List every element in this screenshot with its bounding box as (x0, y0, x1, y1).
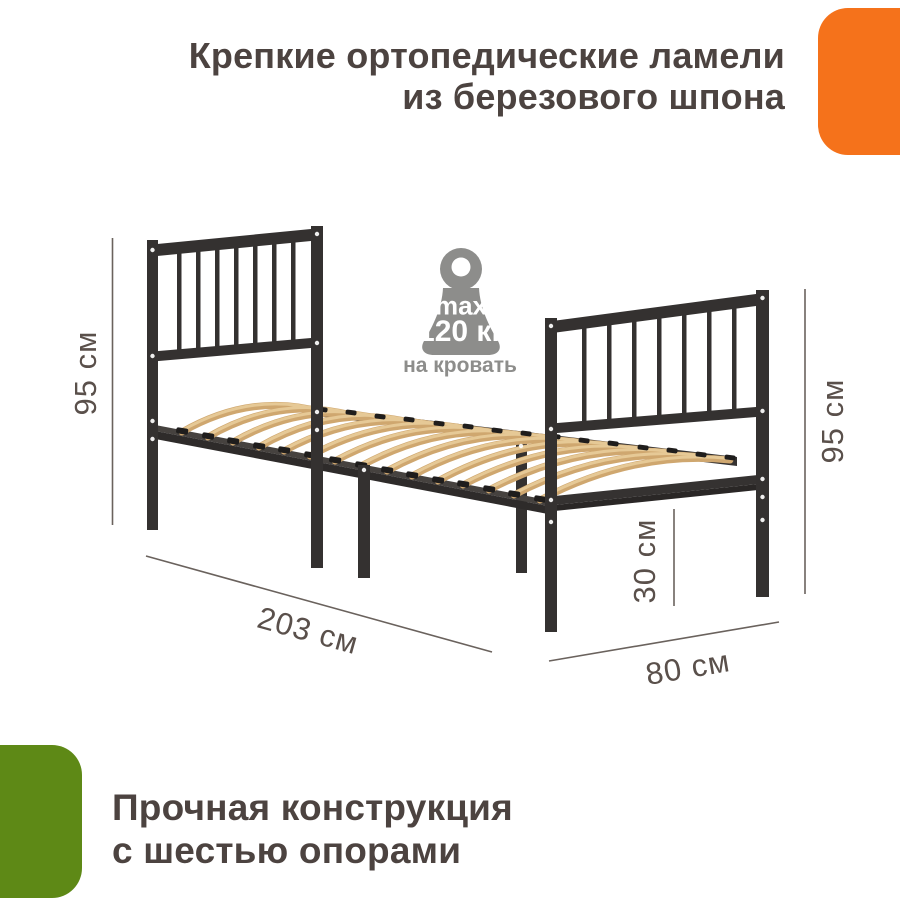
weight-value: 120 кг (418, 315, 504, 349)
bottom-title-line1: Прочная конструкция (112, 787, 513, 830)
bottom-title-line2: с шестью опорами (112, 830, 513, 873)
product-infographic: { "top_banner": { "line1": "Крепкие орто… (0, 0, 900, 900)
bottom-title: Прочная конструкция с шестью опорами (112, 787, 513, 873)
headboard-bottom-rail (147, 338, 311, 362)
footboard-bottom-rail (545, 407, 756, 434)
top-title-line1: Крепкие ортопедические ламели (189, 36, 785, 77)
top-title: Крепкие ортопедические ламели из березов… (189, 36, 785, 117)
bed-illustration (0, 0, 900, 900)
weight-icon-handle-hole (452, 258, 471, 277)
headboard-bars (177, 239, 296, 358)
footboard-near-post (545, 318, 557, 632)
top-title-line2: из березового шпона (189, 77, 785, 118)
green-accent-shape (0, 745, 82, 898)
footboard-far-post (756, 290, 769, 597)
dimension-label-footboard-height: 95 см (815, 379, 851, 464)
headboard-top-rail (147, 229, 311, 257)
weight-caption: на кровать (403, 354, 517, 378)
middle-near-leg (358, 465, 370, 578)
headboard-near-post (147, 240, 158, 530)
dimension-label-headboard-height: 95 см (68, 331, 104, 416)
footboard-top-rail (545, 294, 756, 334)
headboard-far-post (311, 226, 323, 568)
dimension-label-frame-clearance: 30 см (627, 519, 663, 604)
orange-accent-shape (818, 8, 900, 155)
headboard (147, 226, 323, 568)
